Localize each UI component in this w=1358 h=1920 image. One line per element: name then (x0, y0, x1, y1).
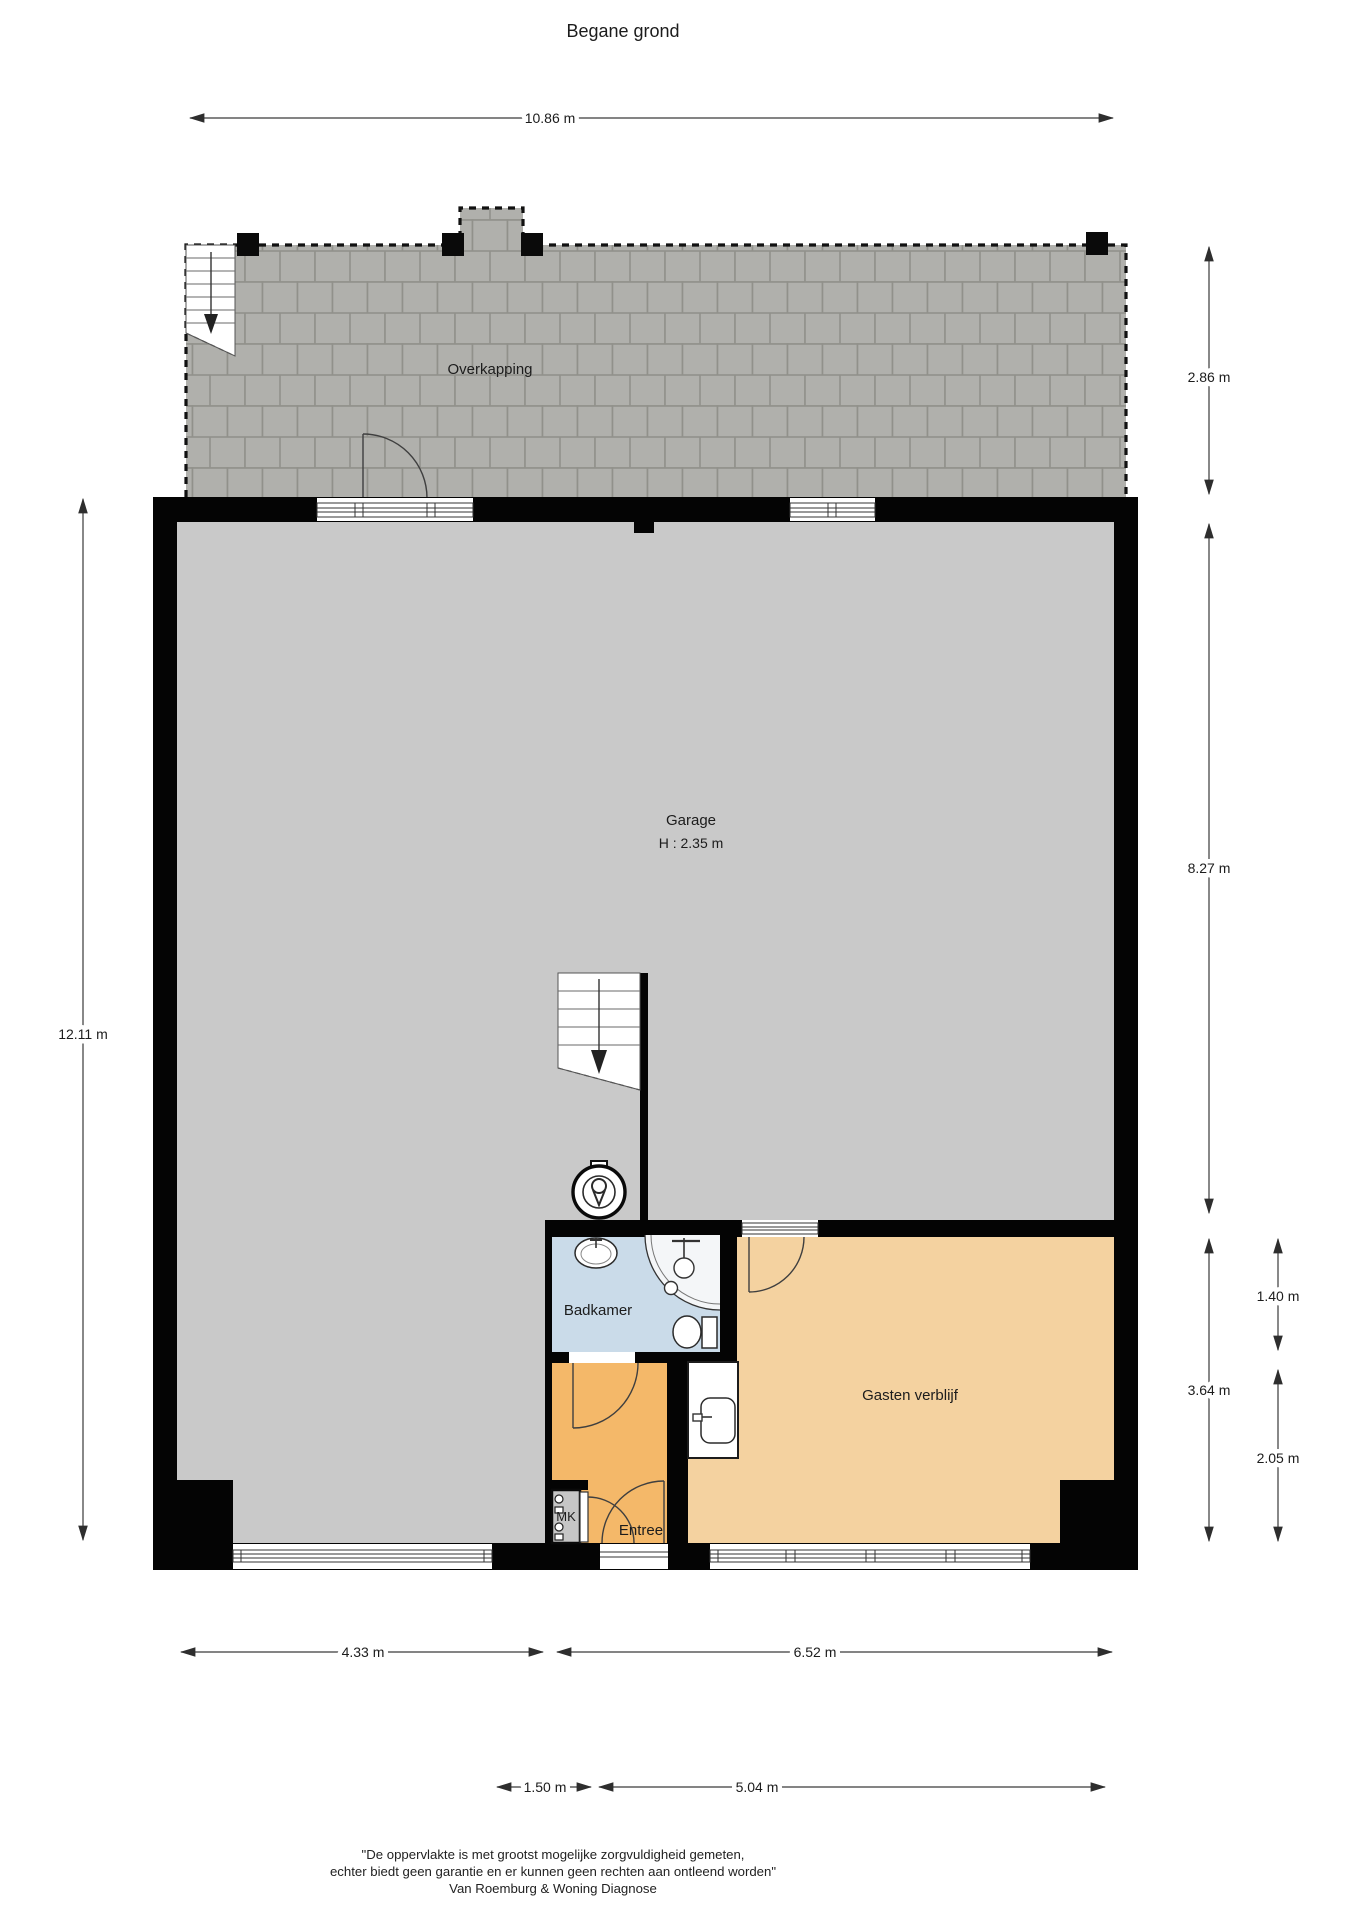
dim-garage-width-label: 4.33 m (342, 1644, 385, 1660)
wall-stub-north (634, 522, 654, 533)
post-icon (1086, 232, 1108, 255)
post-icon (237, 233, 259, 256)
dim-entree-zone-label: 2.05 m (1257, 1450, 1300, 1466)
wall-mk-north (545, 1480, 588, 1490)
post-icon (521, 233, 543, 256)
meterkast-label: MK (556, 1509, 576, 1524)
dim-left-label: 12.11 m (58, 1026, 108, 1042)
gasten-verblijf-label: Gasten verblijf (862, 1387, 959, 1404)
garage-height-label: H : 2.35 m (659, 835, 724, 851)
footer-disclaimer: "De oppervlakte is met grootst mogelijke… (330, 1847, 776, 1896)
mk-door (580, 1492, 588, 1542)
wall-corner-southwest (153, 1480, 233, 1570)
wall-entree-east (667, 1352, 688, 1552)
dim-entree-width-label: 1.50 m (524, 1779, 567, 1795)
wall-badkamer-east (720, 1220, 737, 1363)
window-north-left (317, 498, 473, 521)
footer-line-3: Van Roemburg & Woning Diagnose (449, 1881, 657, 1896)
entree-label: Entree (619, 1522, 663, 1539)
wall-west (153, 497, 177, 1570)
post-icon (442, 233, 464, 256)
dim-southblock-width-label: 6.52 m (794, 1644, 837, 1660)
floorplan-canvas: Overkapping Garage H : 2.35 m Badkamer G… (0, 0, 1358, 1920)
wall-garage-south (545, 1220, 1114, 1237)
floorplan-page: Overkapping Garage H : 2.35 m Badkamer G… (0, 0, 1358, 1920)
dim-top-label: 10.86 m (525, 110, 576, 126)
footer-line-1: "De oppervlakte is met grootst mogelijke… (362, 1847, 745, 1862)
gasten-verblijf-floor-extension (688, 1458, 737, 1543)
window-north-right (790, 498, 875, 521)
footer-line-2: echter biedt geen garantie en er kunnen … (330, 1864, 776, 1879)
dim-gasten-width-label: 5.04 m (736, 1779, 779, 1795)
overkapping-label: Overkapping (447, 361, 532, 378)
dim-southblock-label: 3.64 m (1188, 1382, 1231, 1398)
overkapping-tiles (186, 245, 1126, 497)
wall-corner-southeast (1060, 1480, 1138, 1570)
dim-overkapping-label: 2.86 m (1188, 369, 1231, 385)
wall-staircase (640, 973, 648, 1233)
dim-badkamer-zone-label: 1.40 m (1257, 1288, 1300, 1304)
dim-garage-label: 8.27 m (1188, 860, 1231, 876)
badkamer-label: Badkamer (564, 1302, 632, 1319)
window-garage-south (233, 1544, 492, 1569)
sink-icon (575, 1238, 617, 1268)
window-gasten-south (710, 1544, 1030, 1569)
wall-north (153, 497, 1138, 522)
wall-east (1114, 497, 1138, 1570)
garage-label: Garage (666, 812, 716, 829)
toilet-room (688, 1362, 738, 1458)
front-door-opening (600, 1544, 668, 1569)
page-title: Begane grond (566, 21, 679, 41)
toilet-icon (673, 1316, 717, 1348)
overkapping-bump-tiles (460, 208, 523, 248)
overkapping-area (186, 208, 1126, 498)
